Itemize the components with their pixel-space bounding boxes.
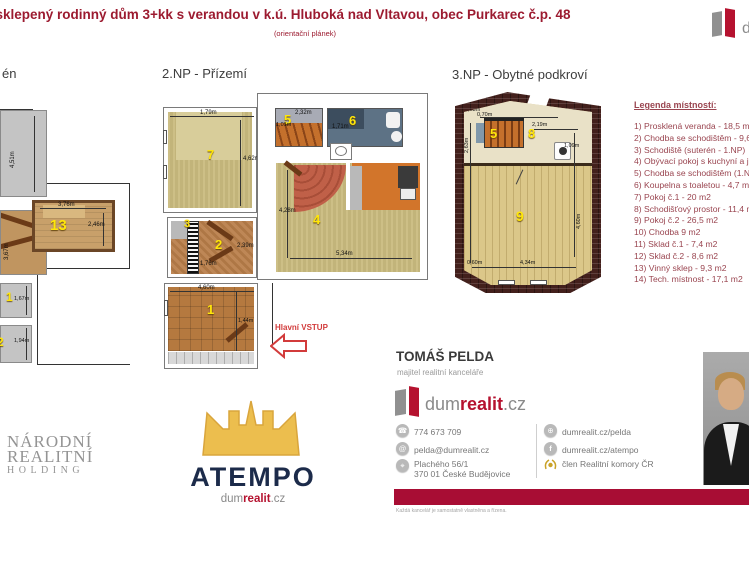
legend-item: 9) Pokoj č.2 - 26,5 m2 <box>634 215 749 227</box>
closet <box>476 123 484 143</box>
globe-icon: ⊕ <box>544 424 557 437</box>
email-address: pelda@dumrealit.cz <box>414 445 489 455</box>
atempo-sub-wordmark: dumrealit.cz <box>168 493 338 505</box>
narodni-realitni-logo: NÁRODNÍ REALITNÍ HOLDING <box>7 434 93 477</box>
dimension-line <box>170 116 254 117</box>
facebook-icon: f <box>544 442 557 455</box>
dim-label: 1,44m <box>238 318 253 324</box>
laurel-icon <box>543 459 558 470</box>
dim-label: 0,70m <box>477 112 492 118</box>
narodni-line3: HOLDING <box>7 464 93 477</box>
room-number-12: 2 <box>0 336 4 348</box>
room-number-4: 4 <box>313 213 320 226</box>
dimension-line <box>103 213 104 246</box>
plan1-title: én <box>2 66 16 81</box>
dim-label: 4,51m <box>10 151 16 168</box>
room-number-13: 13 <box>50 218 67 233</box>
dimension-line <box>534 129 578 130</box>
dim-label: 3,76m <box>58 202 75 208</box>
dim-label: 5,34m <box>336 251 353 257</box>
legend-title: Legenda místností: <box>634 100 749 110</box>
dimension-line <box>290 258 412 259</box>
dim-label: 2,32m <box>295 110 312 116</box>
plan2-title: 2.NP - Přízemí <box>162 66 247 81</box>
dimension-line <box>287 170 288 258</box>
address-line2: 370 01 České Budějovice <box>414 469 510 479</box>
atempo-wordmark: ATEMPO <box>168 462 338 493</box>
legend-item: 6) Koupelna s toaletou - 4,7 m2 <box>634 180 749 192</box>
dumrealit-wordmark: dumrealit.cz <box>425 394 526 415</box>
legend-item: 1) Prosklená veranda - 18,5 m2 <box>634 121 749 133</box>
sink <box>391 131 402 142</box>
dimension-line <box>574 133 575 257</box>
legend-item: 7) Pokoj č.1 - 20 m2 <box>634 192 749 204</box>
crown-icon <box>199 399 303 457</box>
dim-label: 3,67m <box>4 243 10 260</box>
dim-label: 2,19m <box>532 122 547 128</box>
dim-label: 1,79m <box>200 110 217 116</box>
flyer-subtitle: (orientační plánek) <box>225 29 385 38</box>
legend-item: 12) Sklad č.2 - 8,6 m2 <box>634 251 749 263</box>
atempo-sub-realit: realit <box>243 493 271 505</box>
room-number-9: 9 <box>516 209 524 223</box>
photo-face <box>718 378 744 410</box>
narodni-line2: REALITNÍ <box>7 449 93 464</box>
legend-item: 8) Schodišťový prostor - 11,4 m2 <box>634 204 749 216</box>
dumrealit-logo-icon <box>712 8 736 38</box>
legend-item: 2) Chodba se schodištěm - 9,6 m2 <box>634 133 749 145</box>
location-icon: ⌖ <box>396 459 409 472</box>
atempo-sub-dum: dum <box>221 493 243 505</box>
kitchen-counter <box>398 166 418 188</box>
dimension-line <box>236 291 237 351</box>
light-fixture-icon <box>335 146 347 156</box>
dimension-line <box>470 123 471 263</box>
plan1-outline <box>37 268 130 269</box>
dimension-line <box>26 328 27 360</box>
stove <box>400 188 416 200</box>
disclaimer-text: Každá kancelář je samostatně vlastněna a… <box>396 508 507 514</box>
phone-number: 774 673 709 <box>414 427 461 437</box>
entrance-label: Hlavní VSTUP <box>275 323 328 332</box>
plan1-room-12 <box>0 325 32 363</box>
dimension-line <box>40 208 106 209</box>
dim-label: 4,60m <box>576 214 582 229</box>
room-number-3: 3 <box>184 219 190 230</box>
legend-item: 11) Sklad č.1 - 7,4 m2 <box>634 239 749 251</box>
room-number-2: 2 <box>215 238 222 251</box>
stone-strip <box>348 166 362 210</box>
dumrealit-logo-icon <box>395 386 420 417</box>
plan2-porch-strip <box>168 352 254 364</box>
brand-cz: .cz <box>503 394 526 414</box>
dimension-line <box>240 120 241 206</box>
legend-item: 10) Chodba 9 m2 <box>634 227 749 239</box>
window <box>163 165 167 179</box>
dim-label: 2,63m <box>464 138 470 153</box>
dim-label: 1,76m <box>200 261 217 267</box>
dumrealit-logo-letter: d <box>742 20 749 38</box>
room-legend: Legenda místností: 1) Prosklená veranda … <box>634 100 749 286</box>
legend-item: 4) Obývací pokoj s kuchyní a jídelnou <box>634 156 749 168</box>
legend-item: 3) Schodiště (suterén - 1.NP) <box>634 145 749 157</box>
bathtub <box>386 112 400 128</box>
dimension-line <box>34 116 35 192</box>
atempo-sub-cz: .cz <box>271 493 286 505</box>
dimension-line <box>170 291 254 292</box>
phone-icon: ☎ <box>396 424 409 437</box>
window <box>164 300 168 316</box>
window <box>163 130 167 144</box>
dim-label: 0,60m <box>467 260 482 266</box>
dim-label: 1,09m <box>564 143 579 149</box>
dim-label: 2,39m <box>237 243 254 249</box>
brand-realit: realit <box>460 394 503 414</box>
flyer-canvas: { "colors":{"accent_red":"#9c1b30","lege… <box>0 0 749 562</box>
stair-rail <box>484 118 524 121</box>
dimension-line <box>472 267 576 268</box>
room-number-1: 1 <box>207 303 214 316</box>
agent-role: majitel realitní kanceláře <box>397 368 483 377</box>
agent-photo <box>703 352 749 485</box>
plan3-floor: 5 8 9 0,63m 0,70m 2,63m 2,19m 1,09m 4,60… <box>464 101 592 285</box>
room-number-5: 5 <box>490 127 497 140</box>
accent-bar <box>394 489 749 505</box>
dim-label: 4,28m <box>279 208 296 214</box>
plan1-room-14 <box>0 110 47 197</box>
dim-label: 2,46m <box>88 222 105 228</box>
room-number-7: 7 <box>207 148 214 161</box>
wall-gap <box>346 163 350 210</box>
window <box>498 280 515 285</box>
window <box>530 280 547 285</box>
plan3-title: 3.NP - Obytné podkroví <box>452 67 588 82</box>
website-pelda: dumrealit.cz/pelda <box>562 427 631 437</box>
dim-label: 1,67m <box>14 296 29 302</box>
legend-item: 5) Chodba se schodištěm (1.NP - 2.NP) <box>634 168 749 180</box>
room-number-11: 1 <box>6 291 13 303</box>
plan1-outline <box>37 268 38 365</box>
plan1-outline <box>37 364 130 365</box>
legend-item: 14) Tech. místnost - 17,1 m2 <box>634 274 749 286</box>
plan1-outline <box>129 183 130 269</box>
room-number-6: 6 <box>349 114 356 127</box>
brand-dum: dum <box>425 394 460 414</box>
entrance-arrow-icon <box>270 333 308 359</box>
dim-label: 4,34m <box>520 260 535 266</box>
website-atempo: dumrealit.cz/atempo <box>562 445 639 455</box>
dim-label: 4,60m <box>198 285 215 291</box>
agent-name: TOMÁŠ PELDA <box>396 349 494 364</box>
flyer-title: Podsklepený rodinný dům 3+kk s verandou … <box>0 7 560 22</box>
contact-divider <box>536 424 537 478</box>
dimension-line <box>26 286 27 315</box>
dim-label: 1,71m <box>332 124 349 130</box>
dim-label: 1,01m <box>276 122 291 128</box>
email-icon: @ <box>396 442 409 455</box>
member-text: člen Realitní komory ČR <box>562 459 654 469</box>
legend-item: 13) Vinný sklep - 9,3 m2 <box>634 263 749 275</box>
address-line1: Plachého 56/1 <box>414 459 468 469</box>
dim-label: 1,94m <box>14 338 29 344</box>
